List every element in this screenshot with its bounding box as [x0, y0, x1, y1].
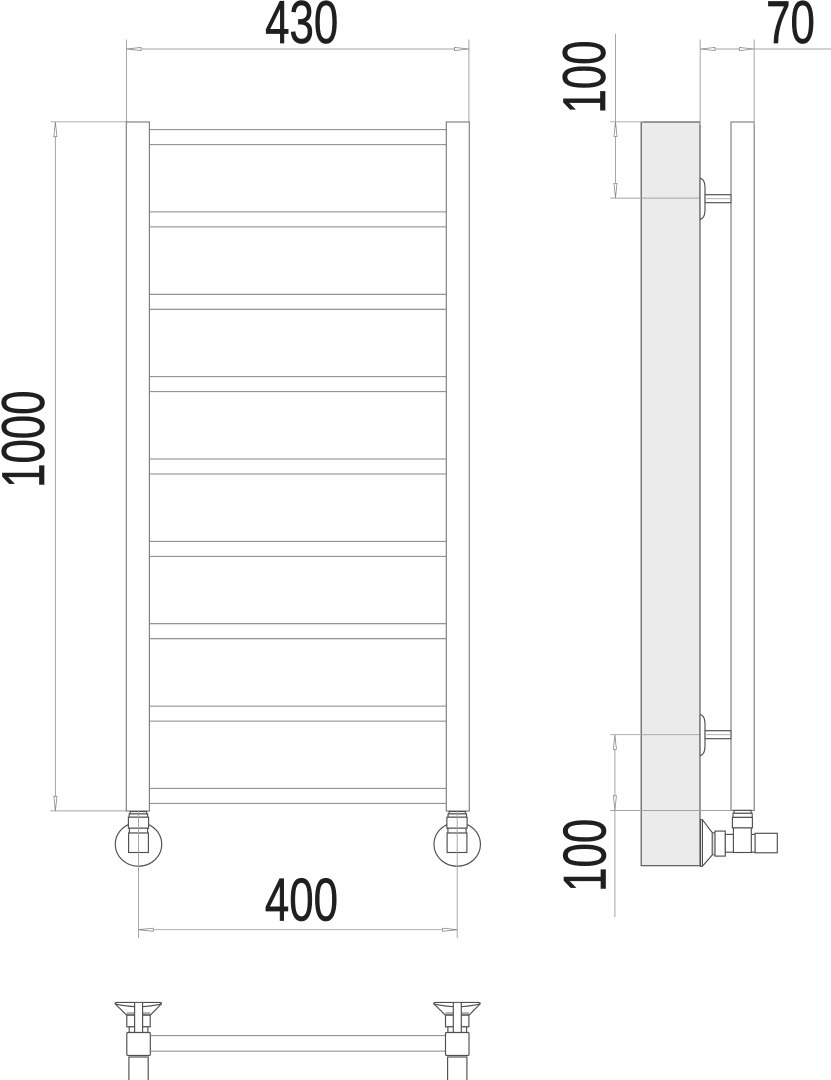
svg-text:100: 100 [552, 819, 619, 892]
svg-text:70: 70 [766, 0, 815, 57]
svg-text:1000: 1000 [0, 390, 58, 487]
svg-text:100: 100 [552, 41, 619, 114]
svg-text:400: 400 [265, 867, 338, 934]
svg-text:430: 430 [265, 0, 338, 57]
